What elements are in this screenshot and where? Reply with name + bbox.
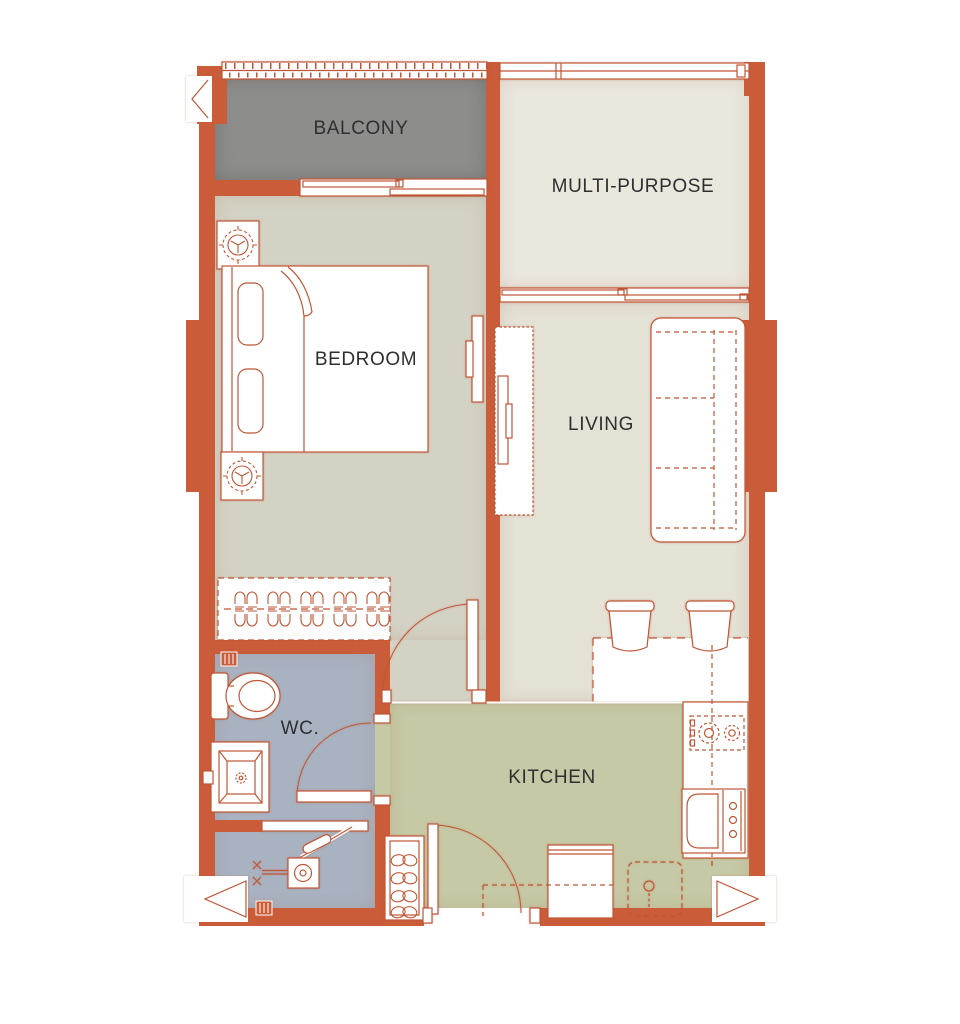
multipurpose-label: MULTI-PURPOSE xyxy=(552,176,715,198)
vent-shaft-icon xyxy=(256,901,272,915)
nightstand-bottom xyxy=(221,452,263,500)
floor-plan: BALCONY MULTI-PURPOSE BEDROOM LIVING WC.… xyxy=(0,0,960,1024)
dining-chair-icon xyxy=(606,601,654,651)
bedroom-label: BEDROOM xyxy=(315,349,417,371)
oven-icon xyxy=(682,789,745,853)
pillow-icon xyxy=(238,283,263,345)
floorplan-linework xyxy=(0,0,960,1024)
kitchen-label: KITCHEN xyxy=(508,767,596,789)
balcony-label: BALCONY xyxy=(313,118,408,140)
vent-shaft-icon xyxy=(221,652,237,666)
balcony-railing-icon xyxy=(222,62,487,79)
bedroom-door-swing-icon xyxy=(383,600,478,694)
tv-cabinet-icon xyxy=(495,327,533,515)
shower-glass-partition xyxy=(262,821,368,831)
nightstand-top xyxy=(217,221,259,269)
living-label: LIVING xyxy=(568,414,634,436)
entrance-door-swing-icon xyxy=(428,824,521,914)
direction-arrow-icon xyxy=(712,876,776,922)
pillow-icon xyxy=(238,369,263,433)
wc-label: WC. xyxy=(281,718,320,740)
wardrobe-hangers-icon xyxy=(218,578,390,640)
toilet-icon xyxy=(211,673,280,719)
bedroom-wall-tv-icon xyxy=(466,316,483,402)
direction-arrow-icon xyxy=(186,76,212,122)
dining-chair-icon xyxy=(686,601,734,651)
fridge-icon xyxy=(483,845,613,918)
living-sliding-partition-icon xyxy=(500,288,749,302)
balcony-sliding-door-icon xyxy=(300,179,487,196)
washing-machine-icon xyxy=(628,862,682,916)
wash-basin-icon xyxy=(203,742,269,812)
shower-set-icon xyxy=(253,821,368,888)
sofa-icon xyxy=(651,318,745,542)
multipurpose-window-icon xyxy=(500,63,749,79)
shoe-cabinet-icon xyxy=(385,836,424,920)
direction-arrow-icon xyxy=(184,876,248,922)
